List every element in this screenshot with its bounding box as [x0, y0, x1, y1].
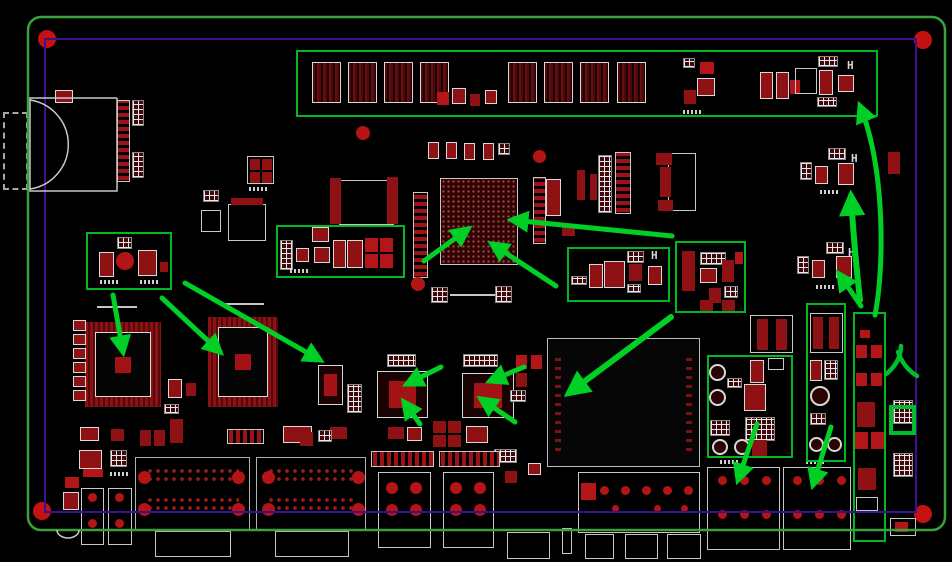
highlight-box — [707, 355, 793, 458]
highlight-box — [806, 303, 846, 462]
pcb-layout-canvas: HHHH 入口 — [0, 0, 952, 562]
highlight-box — [276, 225, 405, 278]
highlight-box — [86, 232, 172, 290]
highlight-box — [567, 247, 670, 302]
highlight-box — [675, 241, 746, 313]
highlight-box — [296, 50, 878, 117]
highlight-box — [853, 312, 886, 542]
highlight-layer — [0, 0, 952, 562]
